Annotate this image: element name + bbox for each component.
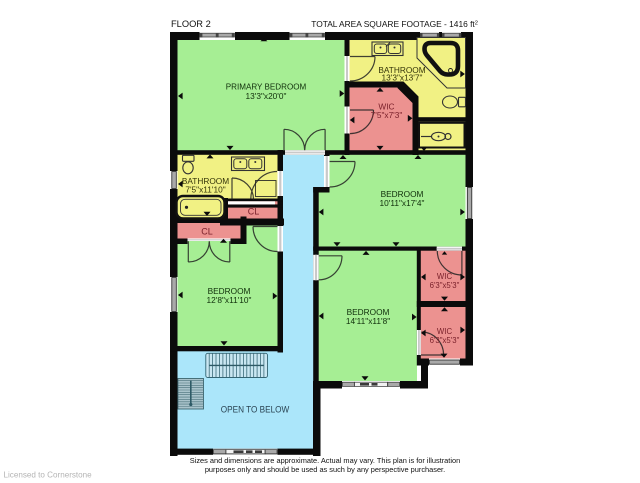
- svg-text:14'11"x11'8": 14'11"x11'8": [346, 316, 390, 326]
- svg-text:FLOOR 2: FLOOR 2: [171, 19, 211, 29]
- svg-text:OPEN TO BELOW: OPEN TO BELOW: [221, 404, 290, 414]
- svg-text:13'3"x20'0": 13'3"x20'0": [246, 91, 287, 101]
- svg-text:CL: CL: [248, 207, 260, 217]
- svg-text:6'3"x5'3": 6'3"x5'3": [430, 336, 460, 345]
- svg-text:Licensed to Cornerstone: Licensed to Cornerstone: [4, 471, 93, 480]
- svg-text:CL: CL: [201, 227, 213, 237]
- svg-text:7'5"x11'10": 7'5"x11'10": [185, 185, 225, 195]
- svg-text:WIC: WIC: [437, 272, 453, 281]
- svg-text:PRIMARY BEDROOM: PRIMARY BEDROOM: [226, 81, 307, 91]
- svg-text:6'3"x5'3": 6'3"x5'3": [430, 281, 460, 290]
- svg-text:13'3"x13'7": 13'3"x13'7": [382, 73, 423, 83]
- svg-text:10'11"x17'4": 10'11"x17'4": [380, 198, 425, 208]
- svg-text:12'8"x11'10": 12'8"x11'10": [207, 295, 252, 305]
- svg-text:WIC: WIC: [437, 327, 453, 336]
- svg-text:7'5"x7'3": 7'5"x7'3": [371, 110, 403, 120]
- svg-text:purposes only and should be us: purposes only and should be used as such…: [205, 465, 445, 474]
- svg-text:TOTAL AREA SQUARE FOOTAGE - 14: TOTAL AREA SQUARE FOOTAGE - 1416 ft2: [311, 19, 478, 29]
- svg-text:Sizes and dimensions are appro: Sizes and dimensions are approximate. Ac…: [190, 456, 460, 465]
